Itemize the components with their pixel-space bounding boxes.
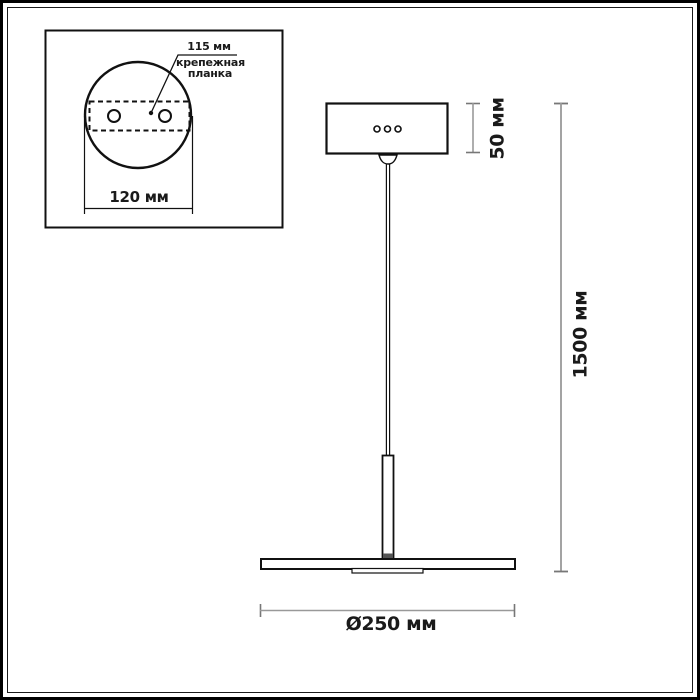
canopy-diameter-label: 120 мм [89,189,189,205]
mounting-plate-label: крепежная планка [176,57,244,79]
suspension-length-label: 1500 мм [571,282,592,388]
hole-spacing-label: 115 мм [178,41,240,53]
canopy-dot-2 [385,126,391,132]
mounting-plate-label-line2: планка [188,67,232,80]
drawing-layer [0,0,700,700]
mount-hole-left [108,110,120,122]
shade-disc [261,559,515,569]
stem-cylinder [383,456,394,560]
canopy-height-label: 50 мм [488,93,509,165]
cord-grip [379,155,397,164]
technical-drawing-canvas: 115 мм крепежная планка 120 мм 50 мм 150… [0,0,700,700]
canopy-dot-3 [395,126,401,132]
diffuser-bar [352,569,423,574]
canopy-dot-1 [374,126,380,132]
mount-hole-right [159,110,171,122]
shade-diameter-label: Ø250 мм [308,614,474,635]
